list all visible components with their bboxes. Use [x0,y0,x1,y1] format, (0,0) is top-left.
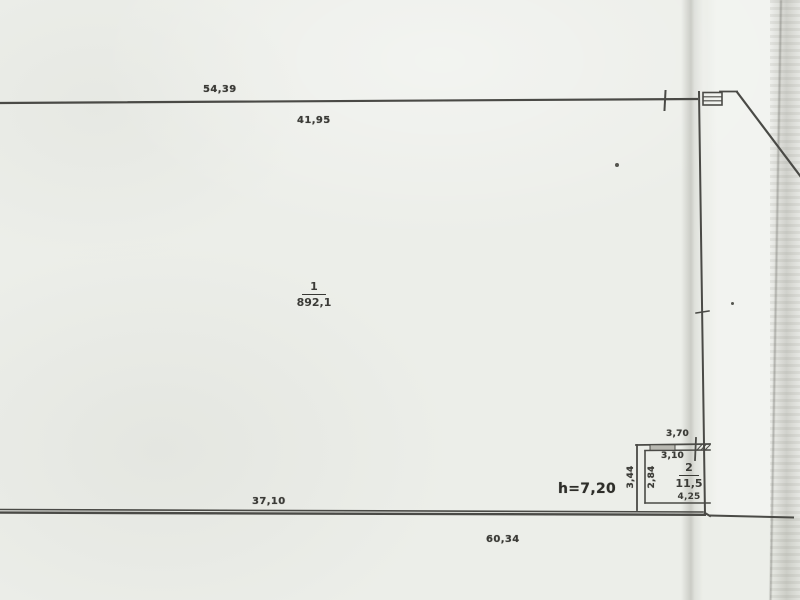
room1-area: 892,1 [290,295,338,309]
boundary-diagonal [720,92,800,178]
room2-number: 2 [679,461,699,476]
room2-dim-top-inner: 3,10 [661,452,684,461]
wall-tick [695,438,696,460]
scanned-floor-plan: 54,39 41,95 37,10 60,34 h=7,20 1 892,1 3… [0,0,800,600]
entrance-stairs-symbol [703,93,722,106]
boundary-tick-right [696,311,709,313]
room2-dim-bottom-inner: 4,25 [672,490,706,502]
room1-number: 1 [302,280,326,295]
room2-label: 2 11,5 4,25 [672,461,706,502]
dim-bottom-outer: 60,34 [486,535,520,545]
wall-fill-segment [650,445,675,450]
room2-dim-left-outer: 3,44 [626,464,636,490]
dim-bottom-inner: 37,10 [252,497,286,507]
boundary-tick-top [665,91,666,110]
dim-top-inner: 41,95 [297,116,331,126]
room2-dim-top-outer: 3,70 [666,430,689,439]
dim-top-outer: 54,39 [203,85,237,95]
room2-area: 11,5 [672,476,706,490]
height-note: h=7,20 [558,482,616,496]
plan-linework [0,0,800,600]
scan-speck [615,163,619,167]
scan-speck [731,302,734,305]
room2-dim-left-inner: 2,84 [647,464,657,490]
room1-label: 1 892,1 [290,280,338,309]
